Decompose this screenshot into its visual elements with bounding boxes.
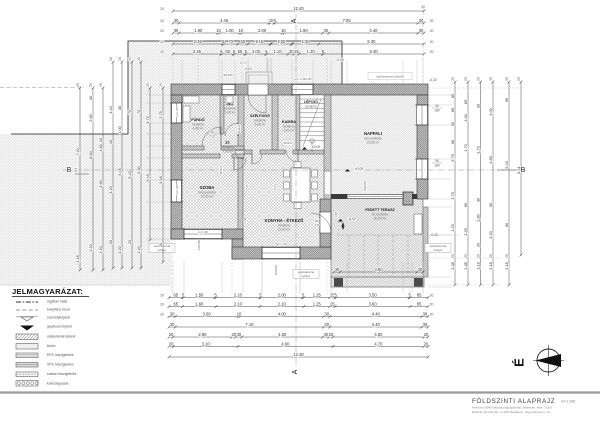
svg-text:50: 50: [240, 39, 245, 44]
svg-text:5,75: 5,75: [450, 154, 455, 162]
svg-text:85: 85: [417, 293, 422, 298]
svg-text:4,45: 4,45: [220, 18, 229, 23]
svg-text:-6,02: -6,02: [348, 217, 356, 221]
svg-text:1,18: 1,18: [488, 262, 493, 270]
svg-text:20: 20: [160, 313, 164, 317]
svg-text:1,25: 1,25: [313, 302, 322, 307]
svg-text:20: 20: [159, 83, 163, 87]
svg-text:lefolyó: lefolyó: [158, 248, 167, 252]
svg-text:4,80: 4,80: [488, 155, 493, 163]
svg-text:30: 30: [236, 332, 241, 337]
svg-text:90: 90: [210, 130, 214, 134]
svg-text:30: 30: [324, 312, 329, 317]
svg-text:4,00: 4,00: [278, 332, 287, 337]
svg-text:2,00: 2,00: [278, 293, 287, 298]
svg-text:1,15: 1,15: [255, 39, 264, 44]
svg-text:1,20: 1,20: [98, 245, 103, 253]
svg-text:20: 20: [169, 332, 174, 337]
svg-text:180: 180: [434, 109, 440, 113]
svg-text:5,45: 5,45: [127, 171, 132, 179]
svg-text:10,93 m²: 10,93 m²: [201, 195, 214, 199]
svg-text:20,54 m²: 20,54 m²: [374, 217, 387, 221]
svg-text:szálas hőszigetelés: szálas hőszigetelés: [47, 372, 77, 376]
svg-text:NAPPALI: NAPPALI: [364, 131, 382, 136]
svg-text:ÉT.: ÉT.: [226, 140, 231, 145]
svg-text:20: 20: [160, 7, 164, 11]
svg-text:2,90: 2,90: [198, 332, 207, 337]
svg-text:2,80: 2,80: [475, 213, 480, 221]
svg-text:1,30: 1,30: [302, 39, 311, 44]
svg-text:-0,32: -0,32: [429, 78, 437, 82]
svg-text:85: 85: [463, 100, 468, 104]
svg-text:1,00: 1,00: [488, 107, 493, 115]
svg-text:20: 20: [489, 77, 493, 81]
svg-text:±0,00: ±0,00: [355, 167, 364, 171]
svg-text:É: É: [512, 358, 527, 367]
svg-text:20: 20: [489, 254, 493, 258]
svg-text:1,70: 1,70: [463, 143, 468, 151]
svg-text:5,75: 5,75: [145, 116, 150, 124]
svg-text:1,18: 1,18: [504, 262, 509, 270]
svg-text:pm: 90: pm: 90: [175, 107, 179, 117]
svg-text:1,90: 1,90: [300, 28, 309, 33]
svg-text:20: 20: [430, 313, 434, 317]
svg-text:22,68 m²: 22,68 m²: [367, 141, 380, 145]
svg-text:90: 90: [435, 159, 439, 163]
svg-text:1,25: 1,25: [313, 293, 322, 298]
svg-text:1,20: 1,20: [307, 49, 316, 54]
svg-text:1,20: 1,20: [136, 245, 141, 253]
svg-text:5,30: 5,30: [370, 49, 379, 54]
svg-text:beton: beton: [47, 344, 56, 348]
svg-text:8,41: 8,41: [516, 166, 521, 174]
svg-text:240: 240: [315, 223, 320, 227]
svg-text:1,38: 1,38: [450, 262, 455, 270]
svg-text:350/240: 350/240: [363, 181, 367, 192]
svg-text:200/240: 200/240: [274, 265, 278, 276]
svg-text:20: 20: [464, 77, 468, 81]
svg-text:pm: 90: pm: 90: [198, 230, 208, 234]
svg-text:30: 30: [418, 267, 423, 272]
svg-text:1,60: 1,60: [195, 302, 204, 307]
svg-text:kerámia: kerámia: [305, 105, 317, 109]
svg-text:20: 20: [99, 83, 103, 87]
svg-text:65: 65: [173, 302, 178, 307]
svg-text:beépítési vonal: beépítési vonal: [47, 308, 70, 312]
svg-text:5,45: 5,45: [504, 161, 509, 169]
svg-text:1,25: 1,25: [450, 224, 455, 232]
svg-text:40: 40: [137, 57, 141, 61]
svg-text:6,60: 6,60: [88, 150, 93, 158]
svg-text:20: 20: [89, 83, 93, 87]
svg-text:4,00: 4,00: [278, 312, 287, 317]
svg-text:20: 20: [160, 303, 164, 307]
svg-text:8,4: 8,4: [74, 168, 78, 173]
svg-text:150/150: 150/150: [197, 240, 201, 251]
svg-text:20: 20: [430, 50, 434, 54]
svg-text:30: 30: [423, 312, 428, 317]
svg-text:20: 20: [430, 303, 434, 307]
svg-text:10: 10: [281, 28, 286, 33]
svg-text:1,20: 1,20: [88, 243, 93, 251]
svg-text:2,10: 2,10: [234, 293, 243, 298]
svg-text:4,96 m²: 4,96 m²: [193, 127, 204, 131]
svg-text:B: B: [67, 167, 72, 174]
svg-text:1,40 m²: 1,40 m²: [225, 111, 236, 115]
svg-text:7,10: 7,10: [245, 322, 254, 327]
svg-text:4,40: 4,40: [372, 322, 381, 327]
svg-text:1,50: 1,50: [195, 293, 204, 298]
svg-text:12,40: 12,40: [293, 352, 304, 357]
svg-text:90: 90: [435, 104, 439, 108]
svg-text:3,02 m²: 3,02 m²: [284, 129, 295, 133]
svg-text:Építtető: Devőse Bt., H-1111 B: Építtető: Devőse Bt., H-1111 Budapest, L…: [472, 409, 551, 414]
svg-text:20: 20: [430, 40, 434, 44]
svg-text:90/150: 90/150: [223, 73, 233, 77]
svg-text:Helyszín: 8043 lakóautomgyűjtő: Helyszín: 8043 lakóautomgyűjtőtelep, bel…: [472, 406, 552, 410]
svg-text:5,65 m²: 5,65 m²: [255, 123, 266, 127]
svg-text:30: 30: [324, 322, 329, 327]
svg-text:5,30: 5,30: [367, 39, 376, 44]
svg-text:180: 180: [434, 164, 440, 168]
svg-text:1,00: 1,00: [277, 39, 286, 44]
svg-text:SZOBA: SZOBA: [200, 185, 215, 190]
svg-text:20: 20: [451, 77, 455, 81]
svg-text:20: 20: [329, 332, 334, 337]
svg-text:1,00: 1,00: [463, 113, 468, 121]
svg-text:1,00: 1,00: [252, 49, 261, 54]
svg-text:30: 30: [323, 28, 328, 33]
svg-text:20: 20: [76, 83, 80, 87]
svg-text:20: 20: [430, 29, 434, 33]
svg-text:1,90: 1,90: [194, 28, 203, 33]
svg-text:3,08: 3,08: [334, 212, 338, 218]
svg-text:1,38: 1,38: [463, 262, 468, 270]
svg-text:20: 20: [476, 77, 480, 81]
svg-text:73: 73: [136, 110, 141, 114]
svg-text:2,75: 2,75: [158, 111, 163, 119]
svg-text:5,41: 5,41: [273, 184, 277, 190]
svg-text:3,50: 3,50: [369, 293, 378, 298]
svg-text:kavicságyazat: kavicságyazat: [47, 382, 68, 386]
svg-text:3,90: 3,90: [98, 179, 103, 187]
svg-text:21,90 m²: 21,90 m²: [278, 228, 291, 232]
svg-text:1,20: 1,20: [117, 245, 122, 253]
svg-text:személybejárat: személybejárat: [47, 316, 70, 320]
svg-text:4,40: 4,40: [372, 312, 381, 317]
svg-text:20: 20: [505, 77, 509, 81]
svg-text:FEDETT TERASZ: FEDETT TERASZ: [365, 208, 395, 212]
svg-text:20: 20: [160, 294, 164, 298]
svg-text:2,10: 2,10: [278, 302, 287, 307]
svg-text:65: 65: [245, 184, 249, 188]
svg-text:3,90: 3,90: [374, 267, 383, 272]
svg-text:90/210: 90/210: [284, 141, 293, 145]
svg-text:1,18: 1,18: [475, 262, 480, 270]
svg-text:20: 20: [118, 57, 122, 61]
svg-text:30: 30: [419, 18, 424, 23]
svg-text:2,45: 2,45: [193, 49, 202, 54]
svg-text:20: 20: [424, 332, 429, 337]
svg-text:5,90: 5,90: [136, 165, 141, 173]
svg-text:20: 20: [451, 254, 455, 258]
svg-text:1,80: 1,80: [98, 143, 103, 151]
svg-text:85: 85: [463, 203, 468, 207]
svg-text:Spm: 90: Spm: 90: [275, 242, 287, 246]
svg-text:20: 20: [169, 342, 174, 347]
svg-text:1,00: 1,00: [226, 28, 235, 33]
svg-text:4,40: 4,40: [369, 28, 378, 33]
svg-text:20: 20: [505, 254, 509, 258]
svg-text:20: 20: [476, 254, 480, 258]
svg-text:90/210: 90/210: [237, 124, 241, 133]
svg-text:WC: WC: [227, 102, 233, 106]
svg-text:XPS hőszigetelés: XPS hőszigetelés: [47, 363, 74, 367]
svg-text:FÖLDSZINTI ALAPRAJZ: FÖLDSZINTI ALAPRAJZ: [472, 397, 555, 405]
svg-text:30: 30: [109, 57, 113, 61]
svg-text:85: 85: [450, 108, 455, 112]
svg-text:3,60: 3,60: [369, 302, 378, 307]
svg-text:ingatlan határ: ingatlan határ: [47, 300, 68, 304]
svg-text:210: 210: [209, 135, 215, 139]
svg-text:30: 30: [335, 267, 340, 272]
svg-text:A: A: [291, 18, 298, 23]
svg-text:20: 20: [160, 40, 164, 44]
svg-text:65: 65: [173, 293, 178, 298]
svg-text:65: 65: [450, 94, 455, 98]
svg-text:20: 20: [517, 77, 521, 81]
svg-text:m=1:100: m=1:100: [561, 400, 575, 404]
svg-text:4,50: 4,50: [374, 332, 383, 337]
svg-text:1,40: 1,40: [108, 105, 113, 113]
svg-text:10: 10: [238, 28, 243, 33]
svg-text:20: 20: [430, 294, 434, 298]
svg-text:LÉPCSŐ: LÉPCSŐ: [304, 99, 318, 104]
svg-text:30: 30: [170, 312, 175, 317]
svg-text:25: 25: [294, 49, 299, 54]
svg-text:-0,17: -0,17: [239, 61, 246, 65]
svg-text:-0,05: -0,05: [336, 58, 344, 62]
svg-text:2,45: 2,45: [194, 39, 203, 44]
svg-text:55: 55: [238, 49, 243, 54]
svg-text:2,00: 2,00: [258, 28, 267, 33]
svg-text:5,45: 5,45: [117, 168, 122, 176]
svg-text:12,40: 12,40: [293, 6, 304, 11]
svg-text:3,00: 3,00: [203, 312, 212, 317]
svg-text:KAMRA: KAMRA: [282, 120, 296, 124]
svg-text:30: 30: [419, 28, 424, 33]
svg-text:10: 10: [216, 28, 221, 33]
svg-text:1,75: 1,75: [450, 192, 455, 200]
svg-text:30: 30: [174, 18, 179, 23]
svg-text:7,05: 7,05: [343, 18, 352, 23]
svg-text:3,10: 3,10: [202, 342, 211, 347]
svg-text:lefolyó: lefolyó: [434, 248, 443, 252]
svg-text:90/210: 90/210: [219, 165, 223, 174]
svg-text:pm: 90: pm: 90: [175, 185, 179, 195]
svg-text:vázkerámia falazat: vázkerámia falazat: [47, 335, 75, 339]
svg-text:4,60: 4,60: [281, 342, 290, 347]
svg-text:1,10: 1,10: [273, 49, 282, 54]
svg-text:85: 85: [417, 302, 422, 307]
svg-text:pm: 1,45/1,80: pm: 1,45/1,80: [294, 77, 312, 81]
svg-text:2,90: 2,90: [243, 217, 247, 223]
svg-text:1,73: 1,73: [475, 146, 480, 154]
svg-text:gépkocsi bejárat: gépkocsi bejárat: [47, 325, 72, 329]
svg-text:70: 70: [228, 39, 233, 44]
svg-text:B: B: [521, 167, 526, 174]
svg-text:20: 20: [424, 342, 429, 347]
svg-text:FÜRDŐ: FÜRDŐ: [191, 117, 205, 122]
svg-text:3,20: 3,20: [108, 185, 113, 193]
svg-text:30: 30: [174, 28, 179, 33]
svg-text:30: 30: [170, 322, 175, 327]
svg-text:KONYHA - ÉTKEZŐ: KONYHA - ÉTKEZŐ: [265, 218, 304, 223]
svg-text:20: 20: [146, 83, 150, 87]
svg-text:A: A: [292, 369, 299, 374]
svg-text:1,20: 1,20: [488, 230, 493, 238]
svg-text:7,20: 7,20: [75, 147, 80, 155]
svg-text:20: 20: [128, 57, 132, 61]
svg-text:1,18: 1,18: [75, 255, 80, 263]
svg-text:30: 30: [423, 322, 428, 327]
svg-text:20: 20: [430, 19, 434, 23]
svg-text:1,00: 1,00: [117, 125, 122, 133]
svg-text:2,10: 2,10: [234, 302, 243, 307]
svg-text:20: 20: [160, 29, 164, 33]
svg-text:20: 20: [160, 50, 164, 54]
svg-text:lefolyó: lefolyó: [302, 274, 311, 278]
svg-text:EPS hőszigetelés: EPS hőszigetelés: [47, 353, 74, 357]
svg-text:60: 60: [225, 49, 230, 54]
svg-text:75: 75: [127, 110, 132, 114]
svg-text:20: 20: [160, 19, 164, 23]
svg-text:10: 10: [237, 312, 242, 317]
svg-text:JELMAGYARÁZAT:: JELMAGYARÁZAT:: [12, 287, 83, 296]
svg-text:25: 25: [330, 302, 335, 307]
svg-text:±0,00: ±0,00: [312, 145, 321, 149]
svg-text:SZÉLFOGÓ: SZÉLFOGÓ: [250, 113, 270, 118]
svg-text:20: 20: [464, 254, 468, 258]
svg-text:1,35: 1,35: [463, 228, 468, 236]
svg-text:2,60: 2,60: [88, 113, 93, 121]
svg-text:esőcsatorna lefolyók: esőcsatorna lefolyók: [376, 75, 404, 79]
svg-text:5,45: 5,45: [145, 174, 150, 182]
svg-text:4,70: 4,70: [374, 342, 383, 347]
svg-text:7,90 m²: 7,90 m²: [223, 150, 234, 154]
